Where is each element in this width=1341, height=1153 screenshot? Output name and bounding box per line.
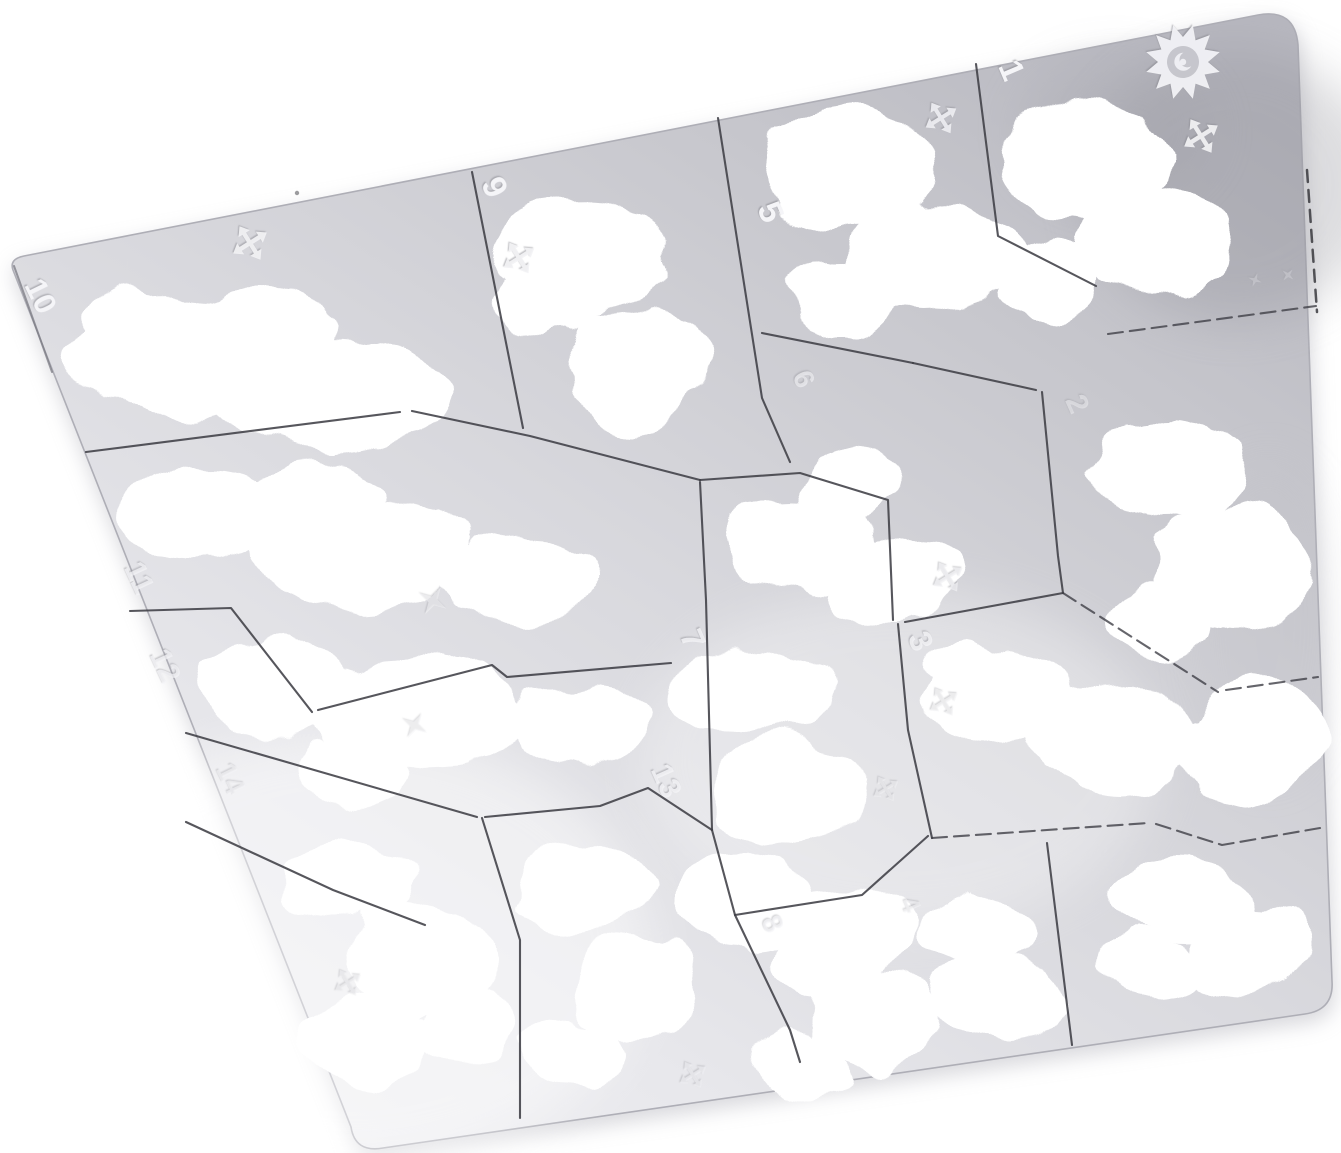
cutout-lobe <box>1104 935 1200 1001</box>
stencil-plate-graphic: 1 2 3 4 5 6 7 8 9 10 11 12 13 14 <box>0 0 1341 1153</box>
cutout-lobe <box>310 996 434 1084</box>
cutout-lobe <box>938 957 1062 1043</box>
cutout-lobe <box>920 890 1036 966</box>
cutout-lobe <box>917 642 1007 702</box>
product-photo: Product photograph of a silver stainless… <box>0 0 1341 1153</box>
cutout-lobe <box>520 1020 624 1096</box>
dust-speck <box>295 191 299 195</box>
cutout-lobe <box>754 1035 850 1101</box>
cutout-lobe <box>255 459 385 525</box>
cutout-lobe <box>1186 904 1310 992</box>
cutout-lobe <box>424 990 520 1066</box>
cutout-lobe <box>295 739 405 805</box>
cutout-lobe <box>77 292 167 352</box>
cutout-lobe <box>998 237 1102 313</box>
cutout-lobe <box>497 262 613 338</box>
cutout-lobe <box>708 738 872 846</box>
cutout-lobe <box>438 533 602 621</box>
cutout-lobe <box>783 262 893 338</box>
cutout-lobe <box>175 288 335 372</box>
cutout-lobe <box>666 650 830 734</box>
cutout-lobe <box>506 684 650 772</box>
cutout-lobe <box>782 886 918 974</box>
cutout-lobe <box>1170 714 1300 810</box>
cutout-lobe <box>512 846 648 934</box>
cutout-lobe <box>804 450 900 514</box>
